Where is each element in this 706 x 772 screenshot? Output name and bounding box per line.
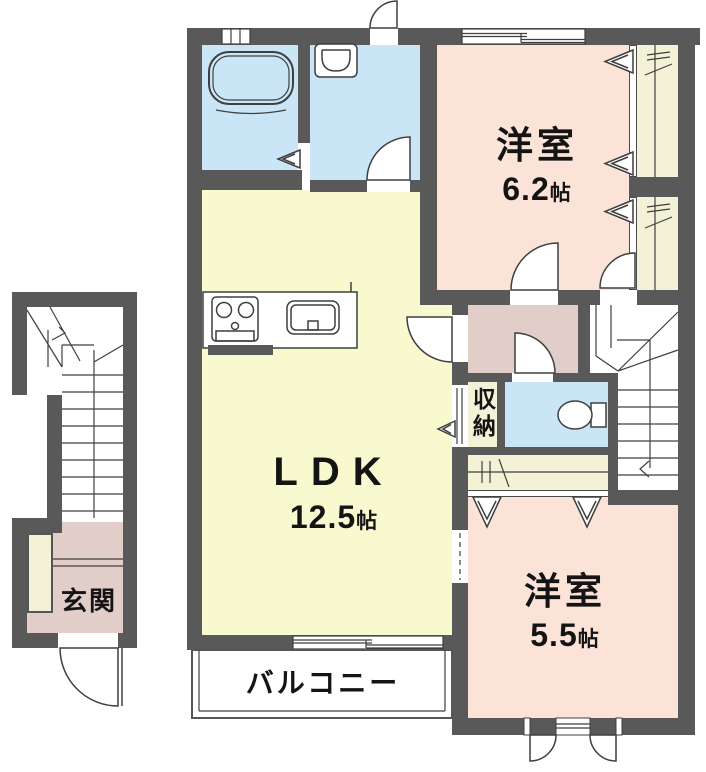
room-label-ldk: LDK 12.5帖 — [273, 447, 394, 537]
door-opening — [512, 373, 553, 382]
wall — [452, 718, 695, 735]
door-opening — [600, 290, 637, 305]
wall — [12, 518, 62, 533]
room-name: 洋室 — [524, 569, 606, 615]
wall — [608, 490, 695, 505]
room-size: 5.5帖 — [524, 615, 606, 655]
floorplan: 洋室 6.2帖 LDK 12.5帖 洋室 5.5帖 バルコニー 玄関 収納 — [0, 0, 706, 772]
room-label-bedroom-upper: 洋室 6.2帖 — [496, 123, 578, 209]
stairs-left — [27, 307, 123, 518]
wall — [187, 28, 202, 650]
ldk-floor — [202, 190, 420, 635]
toilet-floor — [505, 382, 608, 447]
wall — [578, 305, 590, 373]
wall — [187, 635, 452, 650]
pipe-space — [452, 530, 468, 583]
room-label-entrance: 玄関 — [61, 585, 117, 618]
closet-upper-a — [637, 45, 678, 177]
closet-door-track — [629, 45, 637, 177]
room-name: 洋室 — [496, 123, 578, 169]
wall — [468, 447, 608, 455]
wall — [629, 177, 678, 197]
wall — [452, 305, 468, 735]
wall — [298, 45, 310, 143]
hallway-floor — [468, 305, 578, 373]
wall — [678, 28, 695, 735]
door-arc-entrance — [60, 648, 122, 706]
wall — [12, 533, 27, 648]
wall — [202, 170, 302, 190]
door-opening — [370, 28, 398, 45]
closet-lower — [468, 455, 608, 490]
closet-door-track — [468, 490, 608, 497]
wall — [123, 292, 137, 648]
wall — [12, 292, 27, 395]
wall — [187, 28, 700, 45]
wall — [47, 395, 62, 523]
wall — [310, 180, 367, 192]
room-label-bedroom-lower: 洋室 5.5帖 — [524, 569, 606, 655]
door-opening — [367, 180, 410, 192]
ldk-floor-right — [420, 305, 452, 635]
door-opening — [510, 290, 558, 305]
door-opening — [298, 143, 310, 170]
wall — [12, 292, 137, 307]
door-opening — [452, 315, 468, 362]
closet-upper-b — [637, 197, 678, 290]
wall — [420, 45, 437, 305]
room-label-balcony: バルコニー — [246, 666, 400, 701]
room-size: 12.5帖 — [273, 497, 394, 537]
door-opening — [58, 633, 118, 648]
wall — [410, 180, 420, 192]
wall — [608, 373, 618, 490]
room-name: LDK — [273, 447, 394, 497]
closet-door-track — [629, 197, 637, 290]
washroom-floor — [310, 45, 420, 180]
room-label-storage: 収納 — [468, 387, 497, 441]
door-opening — [452, 385, 468, 447]
shoe-cabinet — [27, 533, 53, 613]
room-size: 6.2帖 — [496, 169, 578, 209]
wall — [497, 382, 505, 447]
door-arc-top-exterior — [370, 1, 397, 28]
bathroom-floor — [202, 45, 298, 170]
